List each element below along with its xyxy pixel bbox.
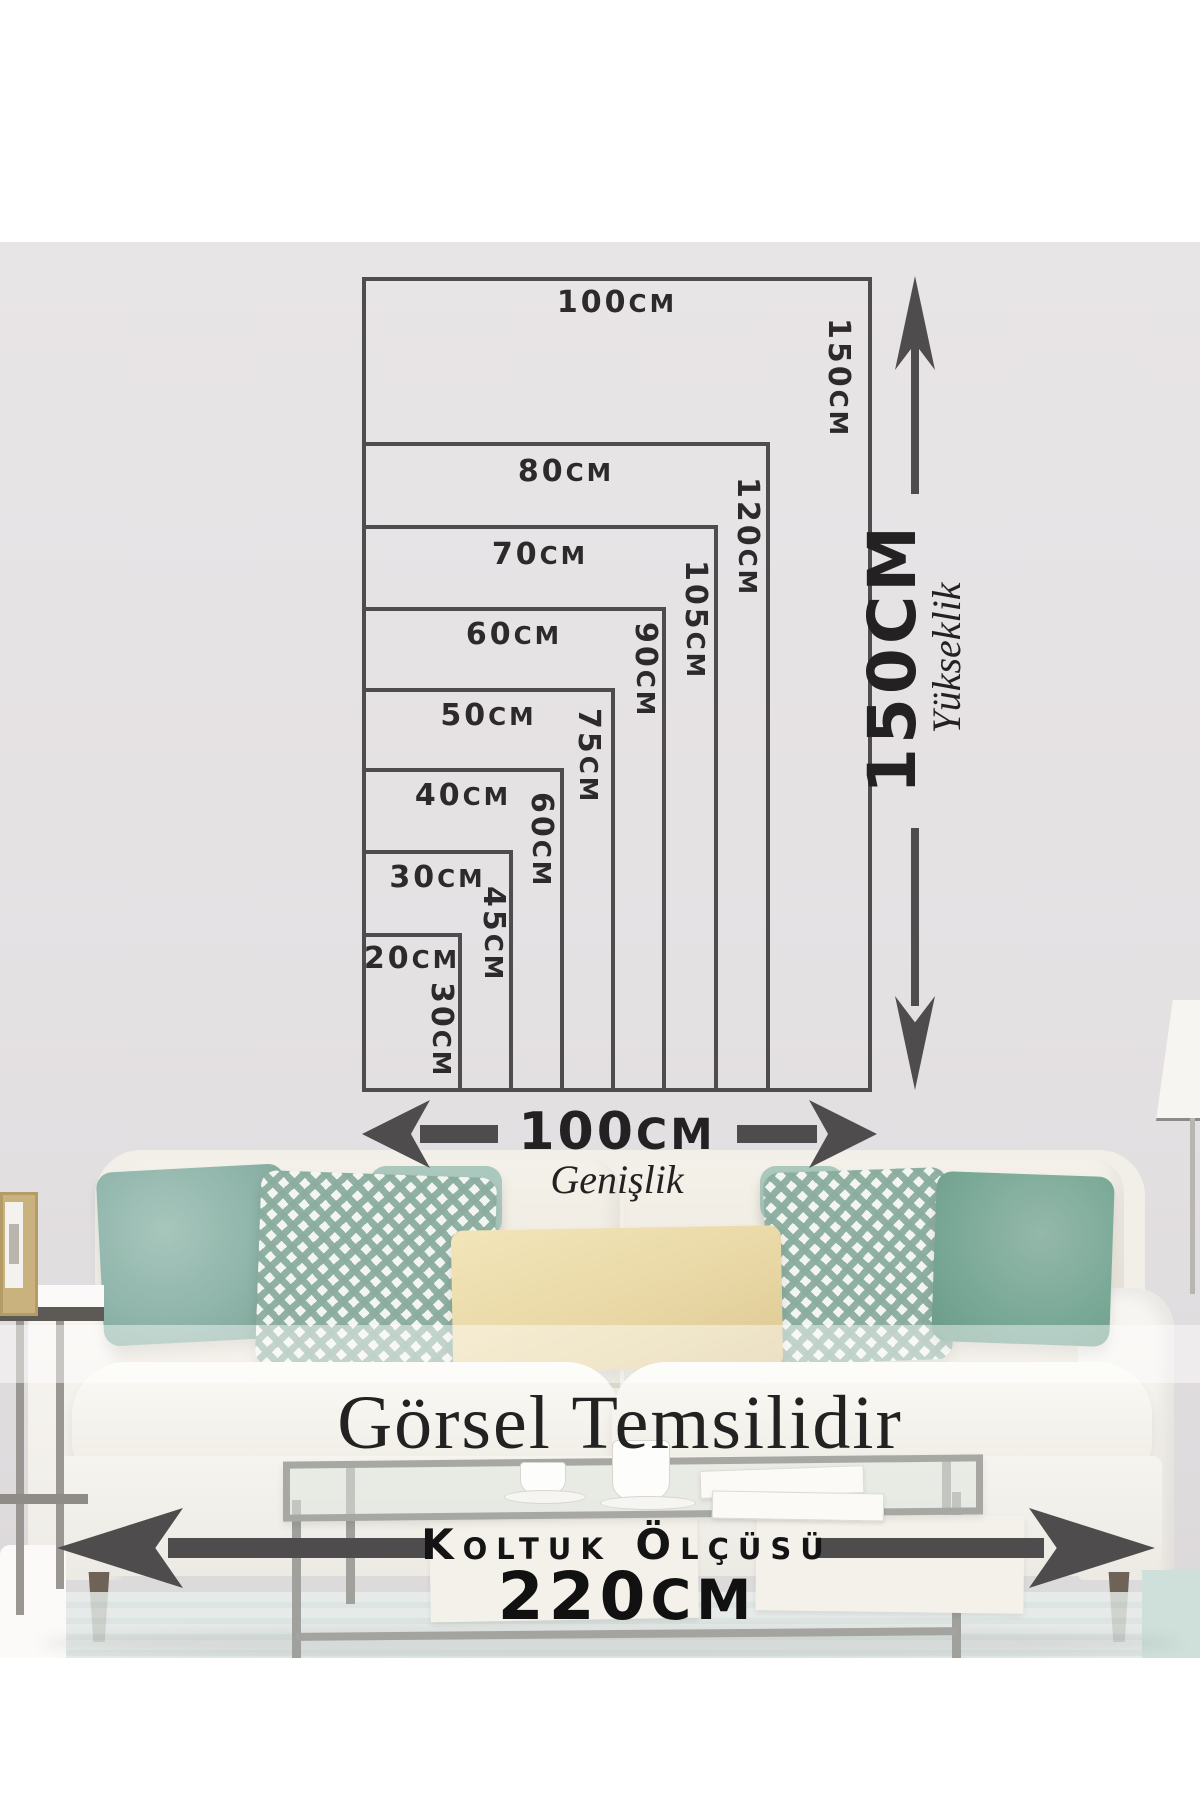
width-label: 60CM: [362, 617, 666, 652]
height-label: 45CM: [476, 886, 511, 982]
height-label: 60CM: [524, 792, 559, 888]
height-arrow-shaft-upper: [911, 342, 919, 494]
sofa-measure-unit: CM: [650, 1569, 756, 1633]
height-arrow-shaft-lower: [911, 828, 919, 1006]
width-axis-value: 100CM: [467, 1102, 767, 1162]
height-label: 105CM: [678, 560, 713, 680]
height-label: 120CM: [730, 477, 765, 597]
height-axis-value: 150CM: [860, 508, 926, 808]
height-label: 75CM: [571, 708, 606, 804]
height-label: 30CM: [424, 982, 459, 1078]
sofa-measure-number: 220: [498, 1558, 651, 1635]
height-label: 150CM: [821, 318, 856, 438]
height-axis-label: Yükseklik: [926, 508, 968, 808]
sofa-measure-value: 220CM: [327, 1558, 927, 1635]
disclaimer-text: Görsel Temsilidir: [200, 1380, 1040, 1467]
height-label: 90CM: [628, 622, 663, 718]
width-axis-label: Genişlik: [467, 1156, 767, 1203]
product-size-guide: 20CM30CM30CM45CM40CM60CM50CM75CM60CM90CM…: [0, 0, 1200, 1800]
height-axis-annotation: 150CM Yükseklik: [860, 508, 980, 808]
width-label: 20CM: [362, 941, 462, 976]
width-label: 70CM: [362, 537, 718, 572]
width-label: 100CM: [362, 285, 872, 320]
width-label: 80CM: [362, 454, 770, 489]
